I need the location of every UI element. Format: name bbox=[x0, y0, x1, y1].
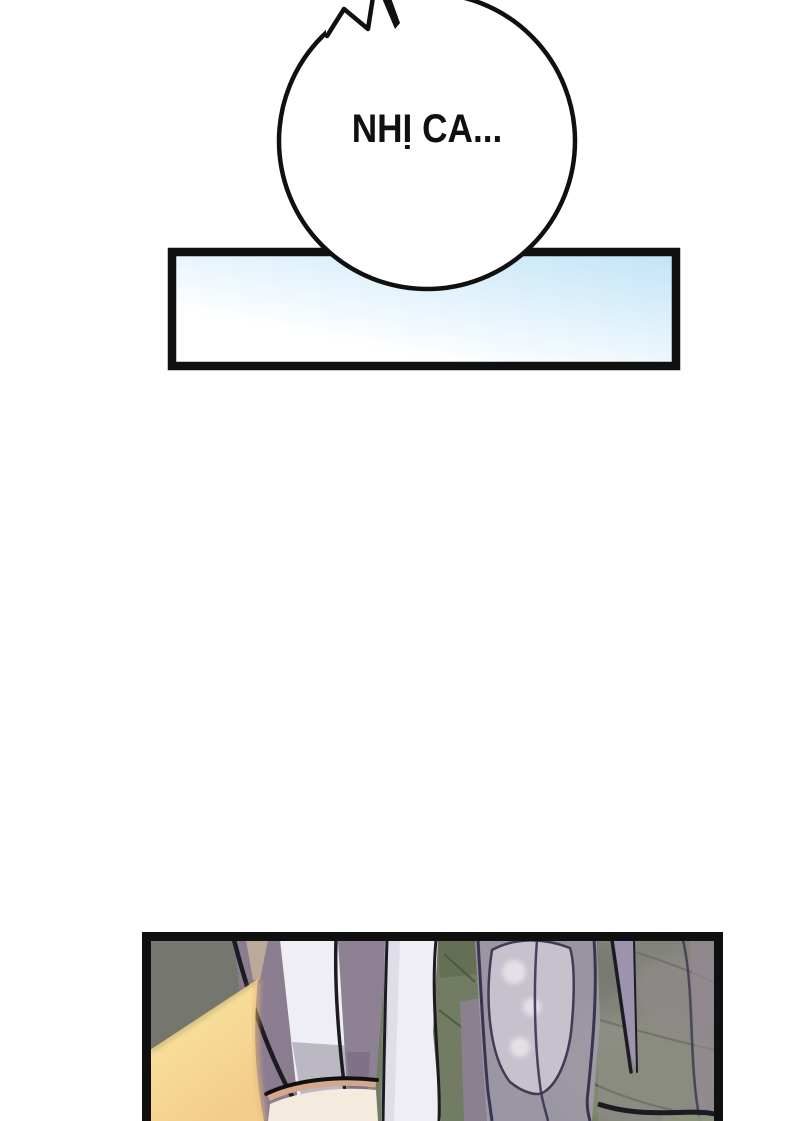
right-sleeve bbox=[598, 940, 715, 1121]
comic-page: NHỊ CA... bbox=[0, 0, 800, 1121]
speech-bubble-graphic bbox=[0, 0, 800, 400]
artwork-panel bbox=[142, 932, 723, 1121]
violet-leg bbox=[460, 940, 600, 1121]
speech-bubble-text: NHỊ CA... bbox=[321, 103, 532, 155]
